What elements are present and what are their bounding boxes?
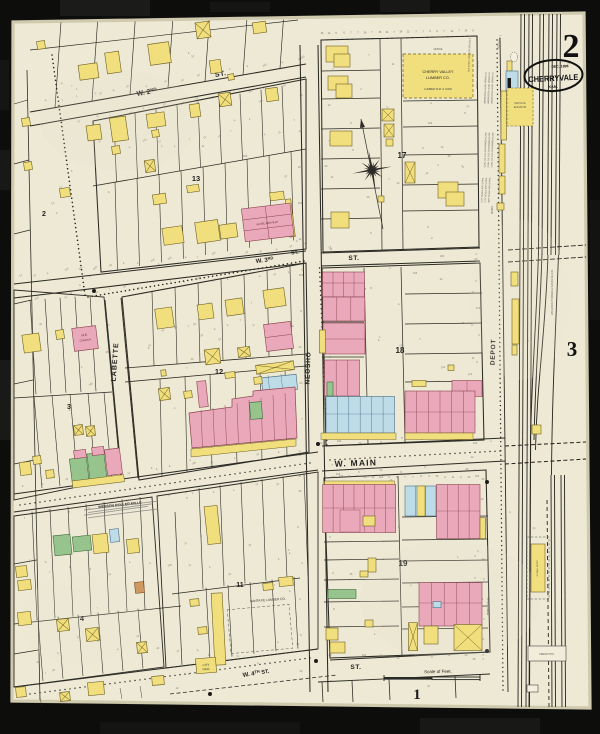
- svg-text:17: 17: [398, 151, 407, 160]
- svg-text:13: 13: [192, 174, 200, 183]
- svg-text:LUMBER CO.: LUMBER CO.: [426, 76, 450, 80]
- svg-text:103: 103: [331, 475, 336, 479]
- svg-text:ST.: ST.: [350, 664, 361, 671]
- svg-text:103: 103: [339, 474, 344, 478]
- svg-text:103: 103: [298, 201, 303, 205]
- svg-text:2: 2: [563, 28, 580, 65]
- svg-text:3: 3: [567, 337, 578, 361]
- svg-text:ST.: ST.: [291, 250, 300, 257]
- svg-text:103: 103: [473, 441, 478, 445]
- svg-text:M.E.: M.E.: [81, 333, 88, 338]
- svg-text:11: 11: [236, 582, 244, 589]
- svg-text:LUMBER W.M. & YARD: LUMBER W.M. & YARD: [424, 87, 452, 91]
- svg-text:NEOSHO: NEOSHO: [304, 351, 312, 384]
- svg-text:SIDING: SIDING: [491, 206, 494, 214]
- svg-text:DEC. 1896: DEC. 1896: [551, 64, 568, 69]
- svg-text:103: 103: [428, 121, 433, 125]
- svg-text:103: 103: [362, 653, 367, 657]
- svg-text:KAN.: KAN.: [548, 85, 557, 89]
- svg-text:1: 1: [413, 687, 421, 703]
- svg-text:ST.: ST.: [348, 255, 359, 262]
- svg-text:103: 103: [413, 271, 418, 275]
- svg-text:HALL: HALL: [202, 667, 210, 672]
- svg-text:ST.PAUL DEPOT: ST.PAUL DEPOT: [536, 559, 539, 576]
- svg-text:103: 103: [299, 273, 304, 277]
- svg-text:12: 12: [215, 367, 223, 376]
- svg-text:103: 103: [379, 475, 384, 479]
- svg-text:103: 103: [298, 165, 303, 169]
- svg-text:2: 2: [42, 211, 46, 218]
- svg-text:Scale of Feet.: Scale of Feet.: [424, 669, 452, 674]
- svg-text:103: 103: [440, 254, 445, 258]
- svg-text:ELEVATOR: ELEVATOR: [514, 106, 527, 109]
- svg-text:103: 103: [475, 474, 480, 478]
- svg-text:W. MAIN: W. MAIN: [335, 457, 378, 468]
- svg-text:SANTA FE: SANTA FE: [514, 102, 526, 105]
- svg-text:CHERRY VALLEY: CHERRY VALLEY: [422, 70, 453, 74]
- svg-text:FREIGHT HO.: FREIGHT HO.: [539, 653, 555, 656]
- svg-text:HOTEL LOGAN: HOTEL LOGAN: [486, 597, 491, 616]
- svg-text:103: 103: [243, 154, 248, 158]
- svg-text:OFFICE: OFFICE: [434, 48, 443, 51]
